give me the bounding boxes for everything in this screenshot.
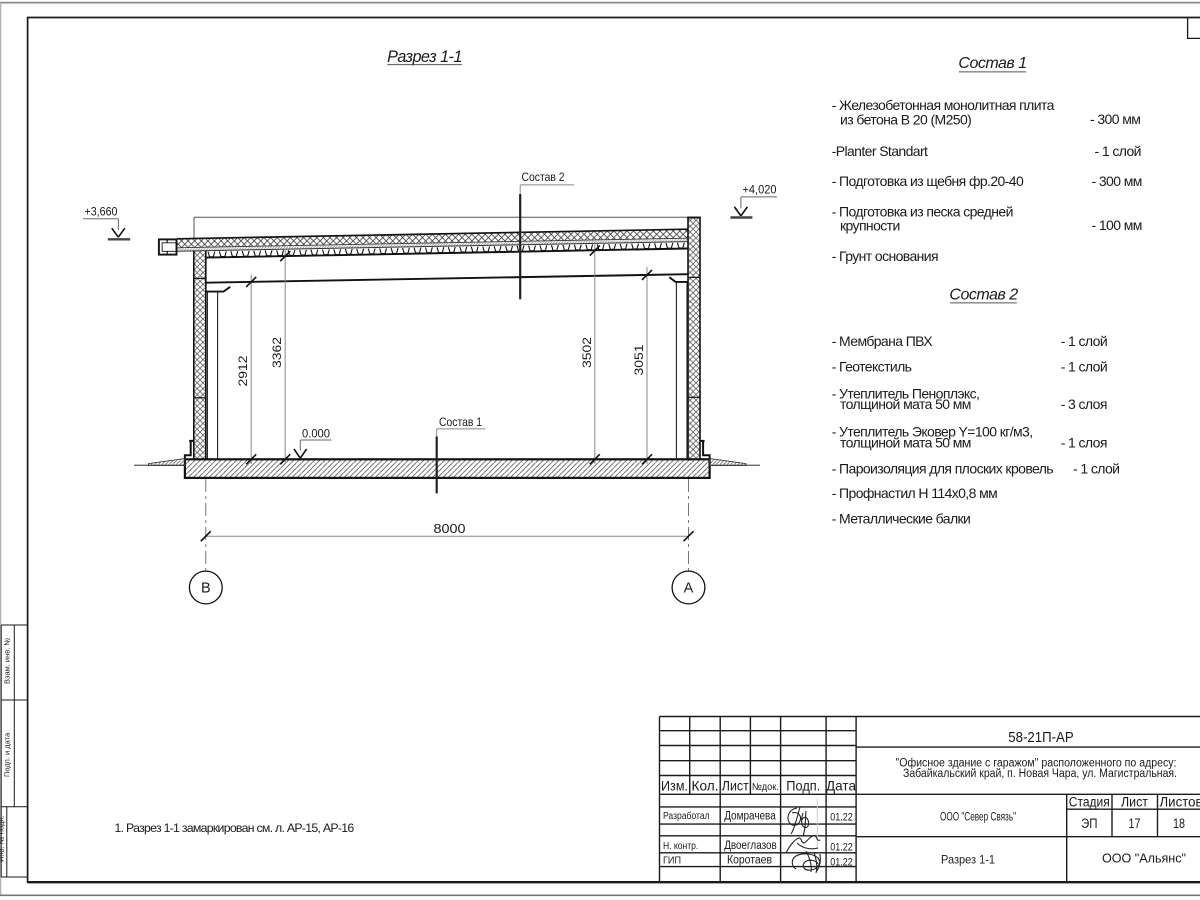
svg-text:В: В [201,581,211,597]
svg-text:крупности: крупности [840,217,900,233]
svg-text:ГИП: ГИП [663,854,681,866]
svg-text:ООО "Альянс": ООО "Альянс" [1102,850,1186,865]
svg-text:Состав 2: Состав 2 [949,286,1018,303]
svg-text:3502: 3502 [580,337,594,368]
svg-text:Разработал: Разработал [663,810,710,822]
svg-text:Изм.: Изм. [661,777,688,793]
svg-text:Взам. инв. №: Взам. инв. № [3,638,12,684]
svg-text:+3,660: +3,660 [85,205,118,219]
svg-text:- 1 слой: - 1 слой [1095,143,1141,159]
svg-text:Лист: Лист [1121,794,1148,809]
svg-text:- Металлические балки: - Металлические балки [832,510,971,526]
svg-text:Подп. и дата: Подп. и дата [3,732,12,777]
svg-text:Домрачева: Домрачева [724,810,776,822]
svg-text:№док.: №док. [752,782,779,793]
svg-text:01.22: 01.22 [830,841,853,853]
svg-text:Кол.: Кол. [692,777,719,793]
svg-text:Забайкальский край, п. Новая Ч: Забайкальский край, п. Новая Чара, ул. М… [903,768,1177,780]
svg-text:Состав 2: Состав 2 [522,170,565,184]
svg-text:- 1 слой: - 1 слой [1073,460,1119,476]
svg-text:- Подготовка из щебня фр.20-40: - Подготовка из щебня фр.20-40 [832,173,1024,189]
svg-text:- 3 слоя: - 3 слоя [1061,396,1107,412]
svg-text:2912: 2912 [236,355,250,386]
svg-text:Разрез 1-1: Разрез 1-1 [387,48,462,66]
svg-text:3362: 3362 [270,337,284,368]
svg-text:Листов: Листов [1160,794,1200,809]
svg-text:Состав 1: Состав 1 [958,55,1026,72]
svg-text:Лист: Лист [722,777,750,793]
svg-text:- 300 мм: - 300 мм [1090,111,1140,127]
svg-text:- Мембрана ПВХ: - Мембрана ПВХ [832,333,934,349]
svg-text:- Пароизоляция для плоских кро: - Пароизоляция для плоских кровель [832,460,1054,476]
svg-text:Подп.: Подп. [786,777,820,793]
svg-text:+4,020: +4,020 [743,183,777,197]
svg-text:8000: 8000 [434,522,466,536]
svg-text:- Грунт основания: - Грунт основания [832,248,938,264]
svg-text:Состав 1: Состав 1 [439,415,482,429]
svg-text:0.000: 0.000 [302,427,330,441]
svg-text:01.22: 01.22 [830,857,853,869]
svg-text:- 1 слоя: - 1 слоя [1061,435,1107,451]
svg-text:58-21П-АР: 58-21П-АР [1008,730,1073,746]
svg-text:толщиной мата 50 мм: толщиной мата 50 мм [840,435,971,451]
svg-text:1. Разрез 1-1 замаркирован см.: 1. Разрез 1-1 замаркирован см. л. АР-15,… [115,821,355,835]
svg-text:- 1 слой: - 1 слой [1061,359,1107,375]
svg-text:- Геотекстиль: - Геотекстиль [832,359,912,375]
svg-text:ООО "Север Связь": ООО "Север Связь" [940,810,1016,824]
svg-text:3051: 3051 [632,344,646,375]
svg-text:Дата: Дата [826,777,856,793]
svg-text:Стадия: Стадия [1069,794,1110,809]
svg-text:Двоеглазов: Двоеглазов [724,840,777,852]
svg-text:Инв. № подл.: Инв. № подл. [0,815,6,862]
svg-text:А: А [684,581,694,597]
svg-text:- 1 слой: - 1 слой [1061,333,1107,349]
svg-text:Разрез 1-1: Разрез 1-1 [941,853,995,867]
svg-text:-Planter Standart: -Planter Standart [832,143,928,159]
svg-text:- 300 мм: - 300 мм [1092,173,1142,189]
svg-text:толщиной мата 50 мм: толщиной мата 50 мм [840,396,971,412]
svg-text:- Профнастил Н 114х0,8 мм: - Профнастил Н 114х0,8 мм [832,485,997,501]
svg-text:Н. контр.: Н. контр. [663,840,698,852]
svg-text:18: 18 [1173,816,1185,831]
svg-text:из бетона В 20 (М250): из бетона В 20 (М250) [840,111,971,127]
svg-text:17: 17 [1129,816,1141,831]
svg-text:01.22: 01.22 [830,812,853,824]
svg-text:ЭП: ЭП [1081,816,1098,831]
svg-text:Коротаев: Коротаев [727,855,772,867]
svg-text:- 100 мм: - 100 мм [1092,217,1142,233]
